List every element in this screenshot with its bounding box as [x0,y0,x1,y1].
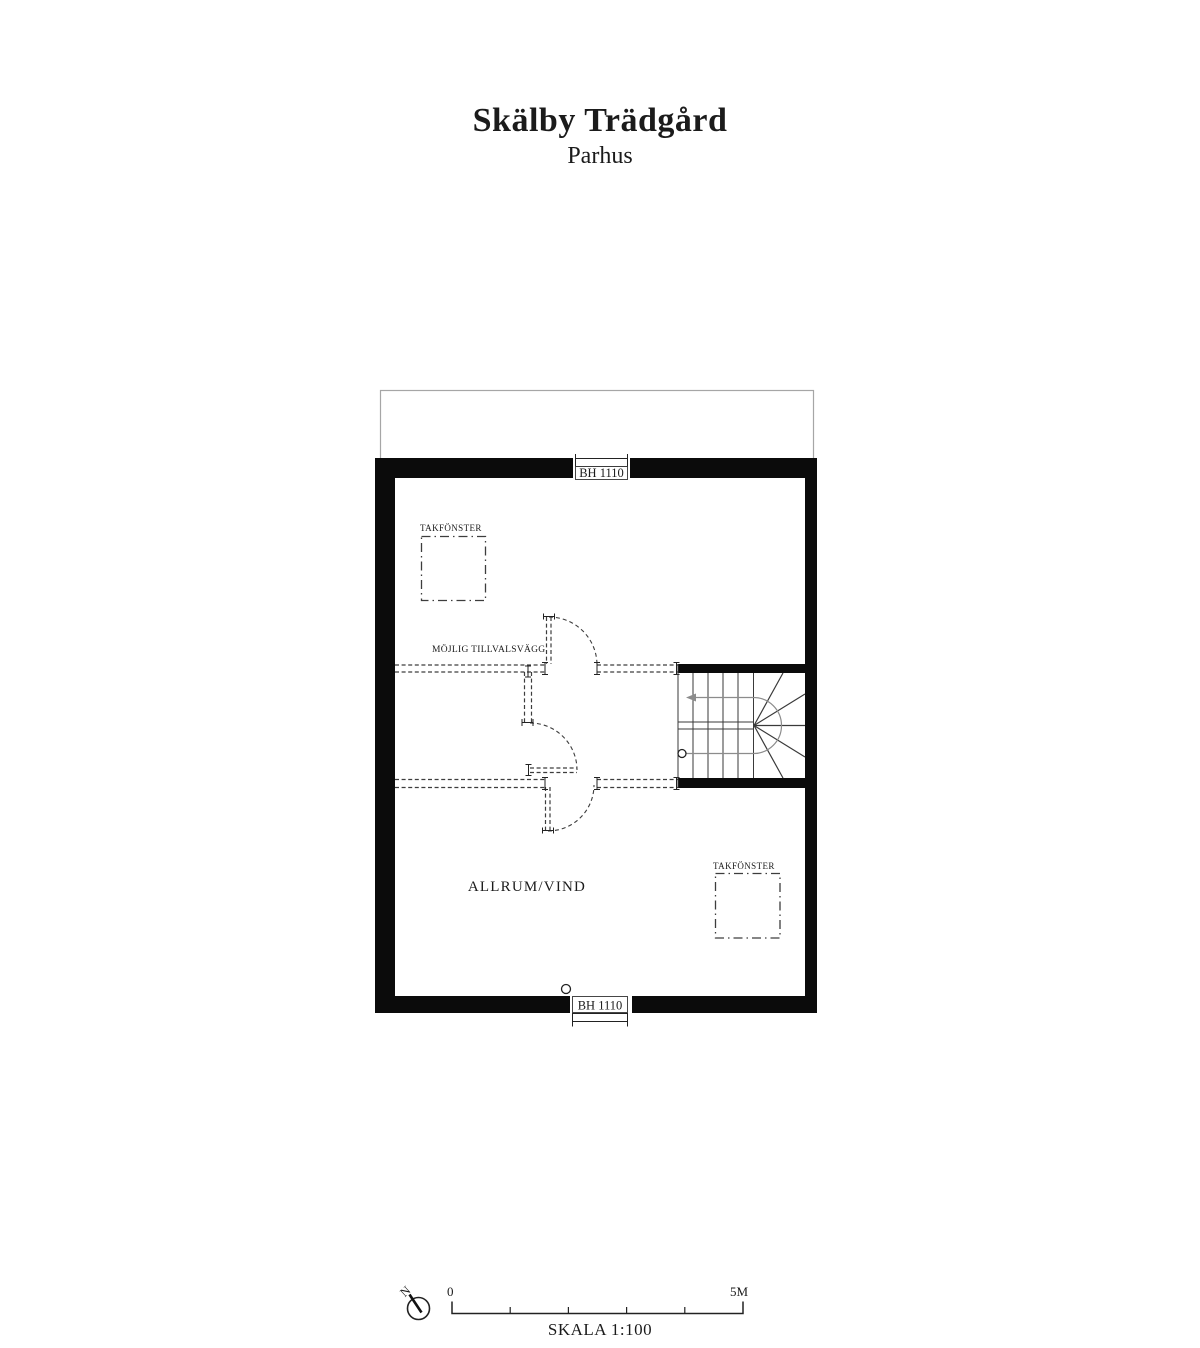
door-bottom-leaf [546,787,551,831]
door-middle [530,723,577,773]
skylight-top-left-outline [422,537,486,601]
floor-plan: BH 1110 BH 1110 TAKFÖNSTER TAKFÖNSTER MÖ… [355,378,850,1038]
jamb-tick [543,828,554,834]
walk-line-start-icon [678,750,686,758]
door-bottom-swing-arc [548,785,594,831]
jamb-tick [544,614,555,620]
wall-right [805,458,817,1013]
scale-end-label: 5M [730,1284,749,1299]
scale-ruler: 0 5M [447,1284,748,1314]
skylight-top-left-label: TAKFÖNSTER [420,523,482,533]
scale-origin-label: 0 [447,1284,454,1299]
jamb-tick [526,765,532,776]
bottom-window: BH 1110 [570,994,632,1027]
north-arrow: N [397,1283,429,1319]
door-top-swing-arc [549,617,597,665]
stair-wall-top [678,664,805,673]
page: Skälby Trädgård Parhus BH 1110 BH 1110 [0,0,1200,1348]
bottom-window-pane [573,1014,628,1022]
skylight-bottom-right-outline [716,874,781,939]
optional-wall-label: MÖJLIG TILLVALSVÄGG [432,643,545,655]
top-window: BH 1110 [573,454,630,480]
room-label: ALLRUM/VIND [468,879,586,895]
stair-treads [693,673,754,778]
wall-left [375,458,395,1013]
vent-circle-icon [562,985,571,994]
project-title: Skälby Trädgård [0,101,1200,141]
drawing-header: Skälby Trädgård Parhus [0,101,1200,171]
optional-wall-upper [395,665,678,672]
scale-ruler-line [452,1302,743,1314]
top-window-label: BH 1110 [579,466,624,480]
scale-ruler-ticks [510,1307,685,1314]
stair-mid-divider [678,722,754,729]
door-top-leaf [547,617,552,664]
skylight-top-left: TAKFÖNSTER [420,523,486,601]
stair-winder-rays [754,673,805,778]
optional-wall-lower [395,780,678,788]
scale-bar: N 0 5M SKALA 1:100 [388,1270,762,1344]
skylight-bottom-right-label: TAKFÖNSTER [713,861,775,871]
jamb-tick [542,663,548,675]
optional-walls: MÖJLIG TILLVALSVÄGG [395,643,678,788]
door-bottom [546,785,595,831]
jamb-tick [594,663,600,675]
staircase [678,664,805,788]
project-subtitle: Parhus [0,141,1200,171]
skylight-bottom-right: TAKFÖNSTER [713,861,780,938]
optional-wall-partition [525,672,532,722]
door-middle-leaf [530,768,577,773]
bottom-window-label: BH 1110 [578,999,623,1013]
door-top [547,617,598,665]
roof-outline [381,391,814,461]
stair-wall-bottom [678,778,805,788]
exterior-walls [375,458,817,1013]
door-middle-swing-arc [530,723,577,770]
scale-caption: SKALA 1:100 [548,1320,652,1339]
walk-line-arrow-icon [686,694,696,702]
